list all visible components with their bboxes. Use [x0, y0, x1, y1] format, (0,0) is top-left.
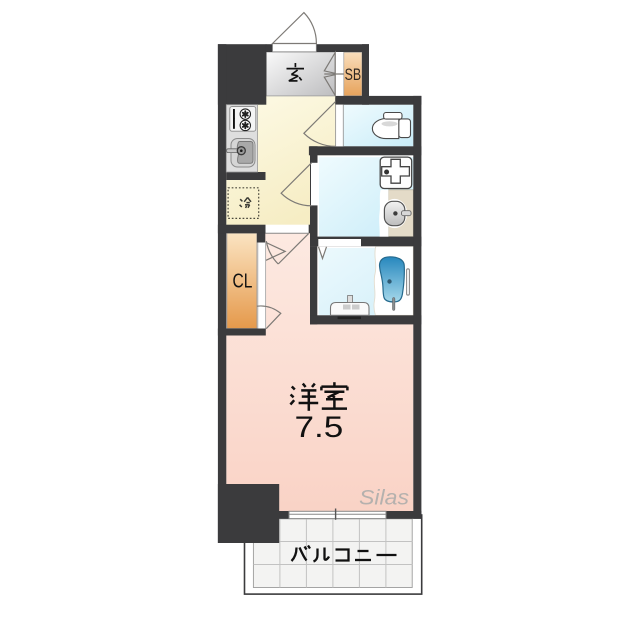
svg-text:Silas: Silas: [359, 486, 409, 510]
svg-text:SB: SB: [345, 65, 362, 84]
svg-text:CL: CL: [233, 270, 253, 293]
svg-text:7.5: 7.5: [295, 411, 344, 444]
